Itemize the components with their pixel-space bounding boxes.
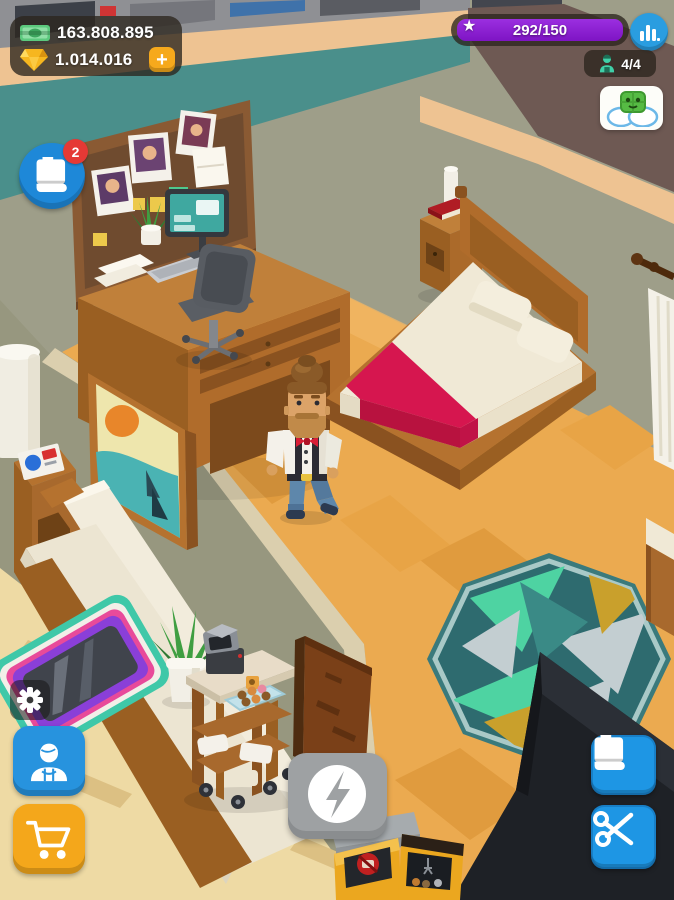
chat-button[interactable] — [600, 86, 663, 130]
level-progress-value: 292/150 — [513, 22, 567, 39]
worker-icon — [599, 54, 615, 73]
journal-button[interactable] — [591, 735, 656, 795]
level-progress-panel: 292/150 ★ — [451, 14, 629, 46]
tasks-button[interactable]: 2 — [19, 143, 85, 209]
currency-panel: 163.808.895 1.014.016 + — [10, 16, 182, 76]
barbers-button[interactable] — [13, 726, 85, 796]
lightning-icon — [288, 753, 387, 839]
sticky-note — [133, 198, 145, 210]
bench-corner — [646, 518, 674, 636]
shop-button[interactable] — [13, 804, 85, 874]
book-icon — [33, 157, 71, 195]
bar-chart-icon — [638, 21, 660, 43]
pinned-papers — [192, 146, 229, 187]
sticky-note — [93, 233, 107, 246]
sticky-note — [150, 197, 166, 212]
photo — [128, 132, 172, 183]
gem-icon — [20, 49, 48, 71]
cash-bill-icon — [20, 23, 50, 43]
barber-person-icon — [24, 735, 74, 787]
star-icon: ★ — [462, 16, 476, 36]
badge-count: 2 — [72, 144, 80, 160]
money-row: 163.808.895 — [20, 21, 154, 45]
level-progress-bar: 292/150 — [457, 19, 623, 41]
photo — [91, 165, 135, 216]
plus-icon: + — [156, 50, 168, 70]
settings-button[interactable] — [10, 680, 50, 720]
staff-count: 4/4 — [621, 56, 640, 72]
boost-button[interactable] — [288, 753, 387, 839]
gear-icon — [16, 686, 44, 714]
white-column — [0, 344, 40, 458]
money-value: 163.808.895 — [57, 23, 154, 43]
game-screen: 163.808.895 1.014.016 + 292/150 ★ 4/4 — [0, 0, 674, 900]
scissors-button[interactable] — [591, 805, 656, 869]
notification-badge: 2 — [63, 139, 88, 164]
gems-value: 1.014.016 — [55, 50, 132, 70]
shopping-cart-icon — [23, 814, 75, 864]
stats-button[interactable] — [630, 13, 668, 51]
gems-row: 1.014.016 — [20, 48, 132, 72]
book-icon — [591, 735, 629, 773]
staff-counter: 4/4 — [584, 50, 656, 77]
add-gems-button[interactable]: + — [149, 47, 175, 72]
scissors-icon — [591, 805, 637, 851]
mascot-chat-bubbles-icon — [605, 89, 659, 127]
